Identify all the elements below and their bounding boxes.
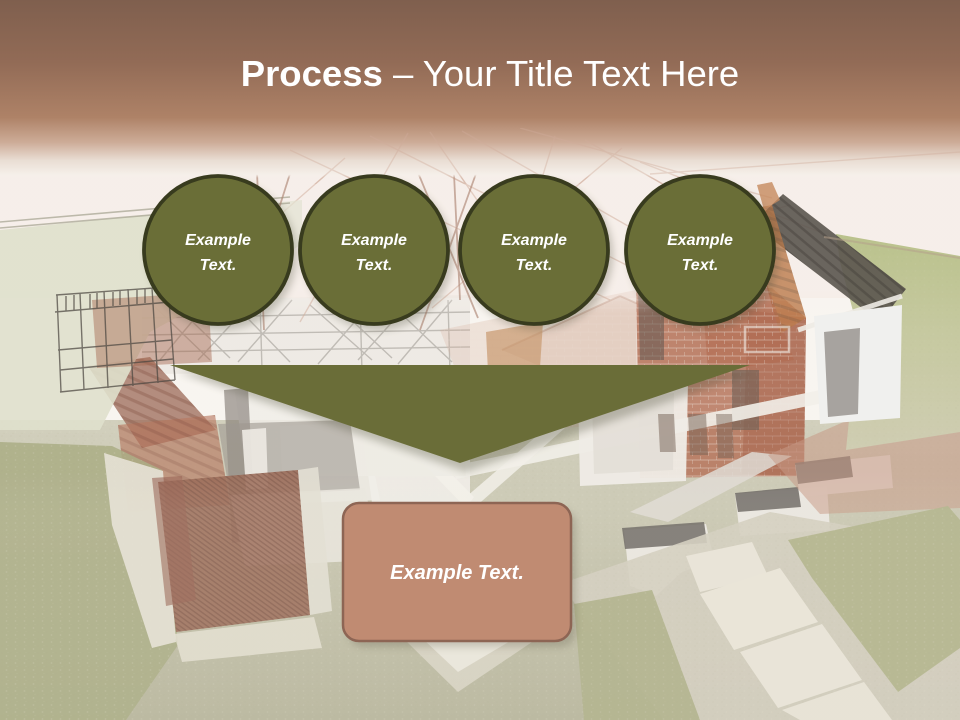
svg-text:Example Text.: Example Text. [390, 562, 524, 584]
svg-text:Text.: Text. [200, 257, 237, 274]
svg-text:Text.: Text. [516, 257, 553, 274]
svg-text:Example: Example [341, 232, 407, 249]
svg-text:Example: Example [185, 232, 251, 249]
svg-text:Process – Your Title Text Here: Process – Your Title Text Here [241, 53, 739, 94]
svg-text:Text.: Text. [682, 257, 719, 274]
svg-text:Text.: Text. [356, 257, 393, 274]
svg-text:Example: Example [501, 232, 567, 249]
svg-text:Example: Example [667, 232, 733, 249]
